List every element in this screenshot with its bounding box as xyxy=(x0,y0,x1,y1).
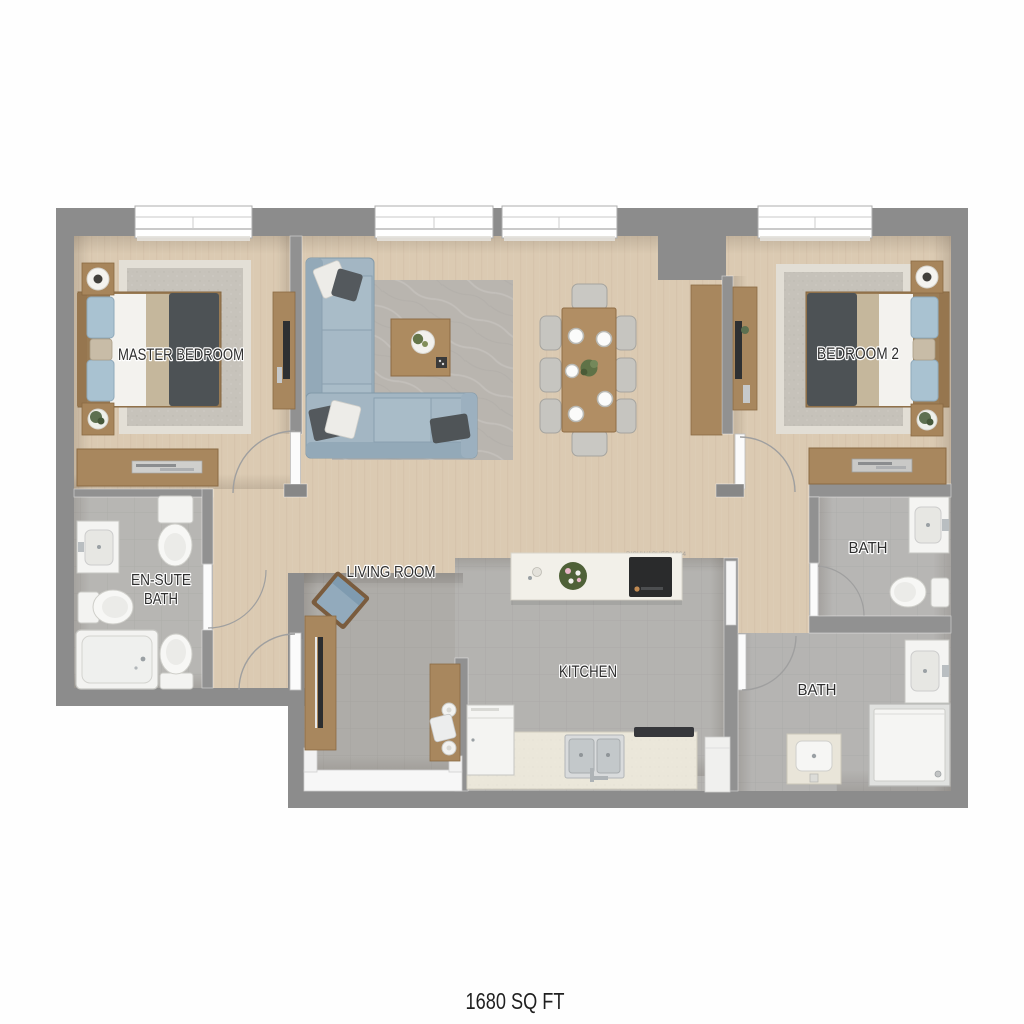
svg-text:BEDROOM 2: BEDROOM 2 xyxy=(817,345,899,363)
svg-text:MASTER BEDROOM: MASTER BEDROOM xyxy=(118,346,244,364)
svg-text:BATH: BATH xyxy=(144,591,178,608)
svg-text:BATH: BATH xyxy=(798,682,837,699)
svg-text:1680 SQ FT: 1680 SQ FT xyxy=(466,988,565,1014)
svg-text:LIVING ROOM: LIVING ROOM xyxy=(347,564,436,581)
svg-text:EN-SUTE: EN-SUTE xyxy=(131,572,191,589)
svg-text:KITCHEN: KITCHEN xyxy=(559,663,617,681)
svg-text:BATH: BATH xyxy=(849,540,888,557)
